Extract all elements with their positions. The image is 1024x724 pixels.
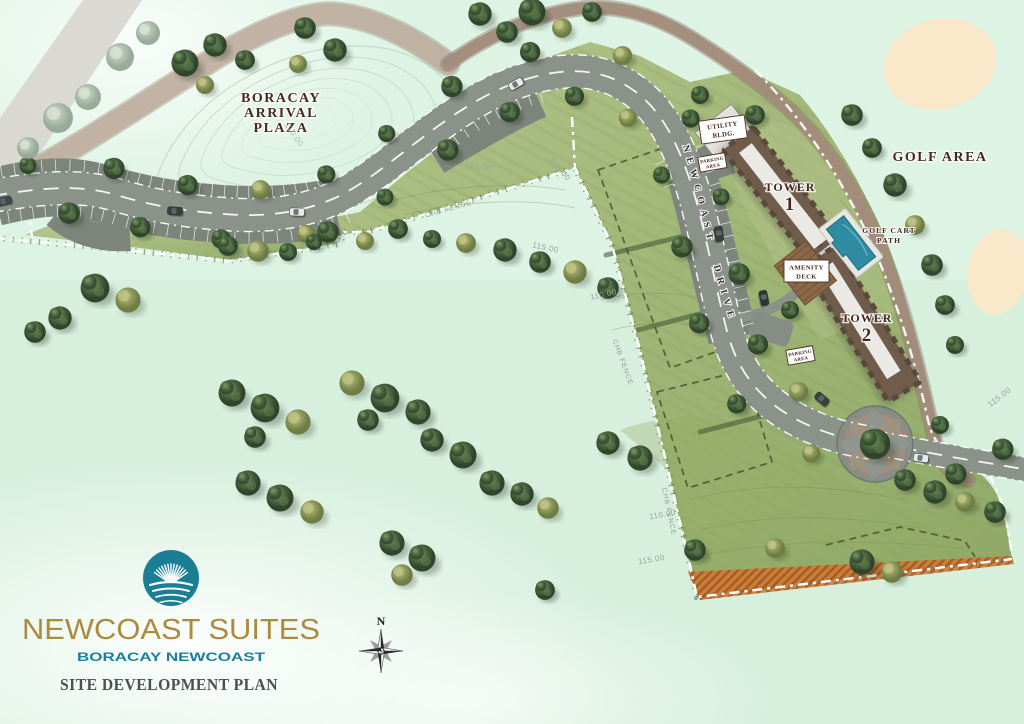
amenity-deck-label: AMENITY DECK xyxy=(784,260,829,282)
svg-text:PLAZA: PLAZA xyxy=(254,121,309,136)
svg-text:PATH: PATH xyxy=(877,236,901,245)
golf-area-label: GOLF AREA xyxy=(892,150,987,165)
site-plan-map: BORACAY ARRIVAL PLAZA GOLF AREA UTILITY … xyxy=(0,0,1024,724)
brand-name: NEWCOAST SUITES xyxy=(22,614,320,646)
svg-text:ARRIVAL: ARRIVAL xyxy=(244,106,318,121)
svg-text:DECK: DECK xyxy=(796,274,817,281)
svg-text:1: 1 xyxy=(785,194,796,215)
svg-text:2: 2 xyxy=(862,325,873,346)
plan-title: SITE DEVELOPMENT PLAN xyxy=(60,675,278,694)
compass-north-label: N xyxy=(377,614,386,628)
site-development-plan: BORACAY ARRIVAL PLAZA GOLF AREA UTILITY … xyxy=(0,0,1024,724)
svg-text:GOLF CART: GOLF CART xyxy=(862,226,915,235)
svg-text:BORACAY: BORACAY xyxy=(241,91,321,106)
brand-location: BORACAY NEWCOAST xyxy=(77,652,265,664)
svg-text:TOWER: TOWER xyxy=(765,180,816,194)
svg-text:TOWER: TOWER xyxy=(842,311,893,325)
svg-text:AMENITY: AMENITY xyxy=(789,265,824,272)
